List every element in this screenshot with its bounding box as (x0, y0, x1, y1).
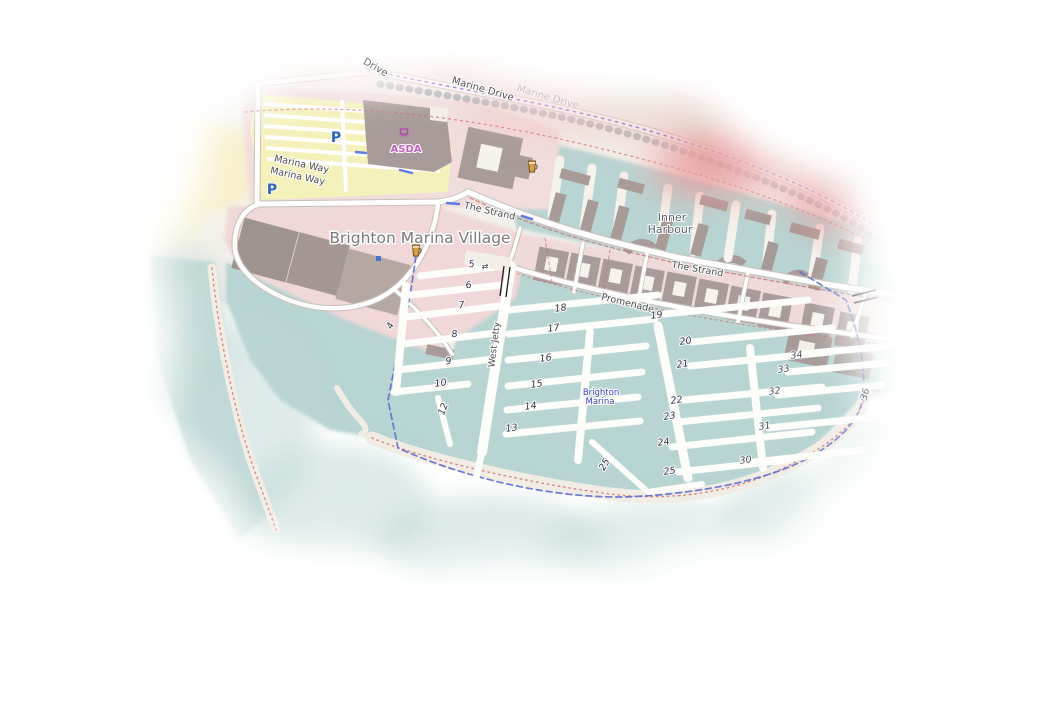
map-canvas[interactable]: DriveMarine DriveMarine DriveMarina WayM… (0, 0, 1058, 715)
shop-label-asda: ASDA (391, 144, 422, 155)
info-icon (376, 256, 381, 261)
pontoon-number: 10 (434, 377, 448, 390)
parking-icon: P (267, 182, 277, 198)
pontoon-number: 21 (676, 358, 690, 371)
pontoon-number: 31 (758, 420, 772, 433)
pontoon-number: 24 (657, 436, 671, 449)
pontoon-number: 25 (663, 465, 677, 478)
pontoon-number: 14 (524, 400, 538, 413)
parking-icon: P (331, 130, 341, 146)
pontoon-number: 18 (554, 302, 568, 315)
pontoon-number: 17 (547, 322, 561, 335)
pontoon-number: 20 (679, 335, 693, 348)
place-label-inner-harbour: Harbour (648, 223, 693, 236)
pontoon-number: 23 (663, 410, 677, 423)
place-label-brighton-marina-village: Brighton Marina Village (329, 229, 510, 247)
pontoon-number: 34 (790, 349, 804, 362)
pontoon-number: 32 (768, 385, 782, 398)
water-label-brighton-marina: Marina (586, 397, 615, 407)
pontoon-number: 16 (539, 352, 553, 365)
pontoon-number: 15 (530, 378, 544, 391)
pontoon-number: 22 (670, 394, 684, 407)
pontoon-number: 13 (505, 422, 519, 435)
lock-exchange-icon: ⇄ (482, 262, 489, 271)
pontoon-number: 33 (777, 363, 791, 376)
pontoon-number: 19 (650, 309, 664, 322)
pontoon-number: 30 (739, 454, 753, 467)
